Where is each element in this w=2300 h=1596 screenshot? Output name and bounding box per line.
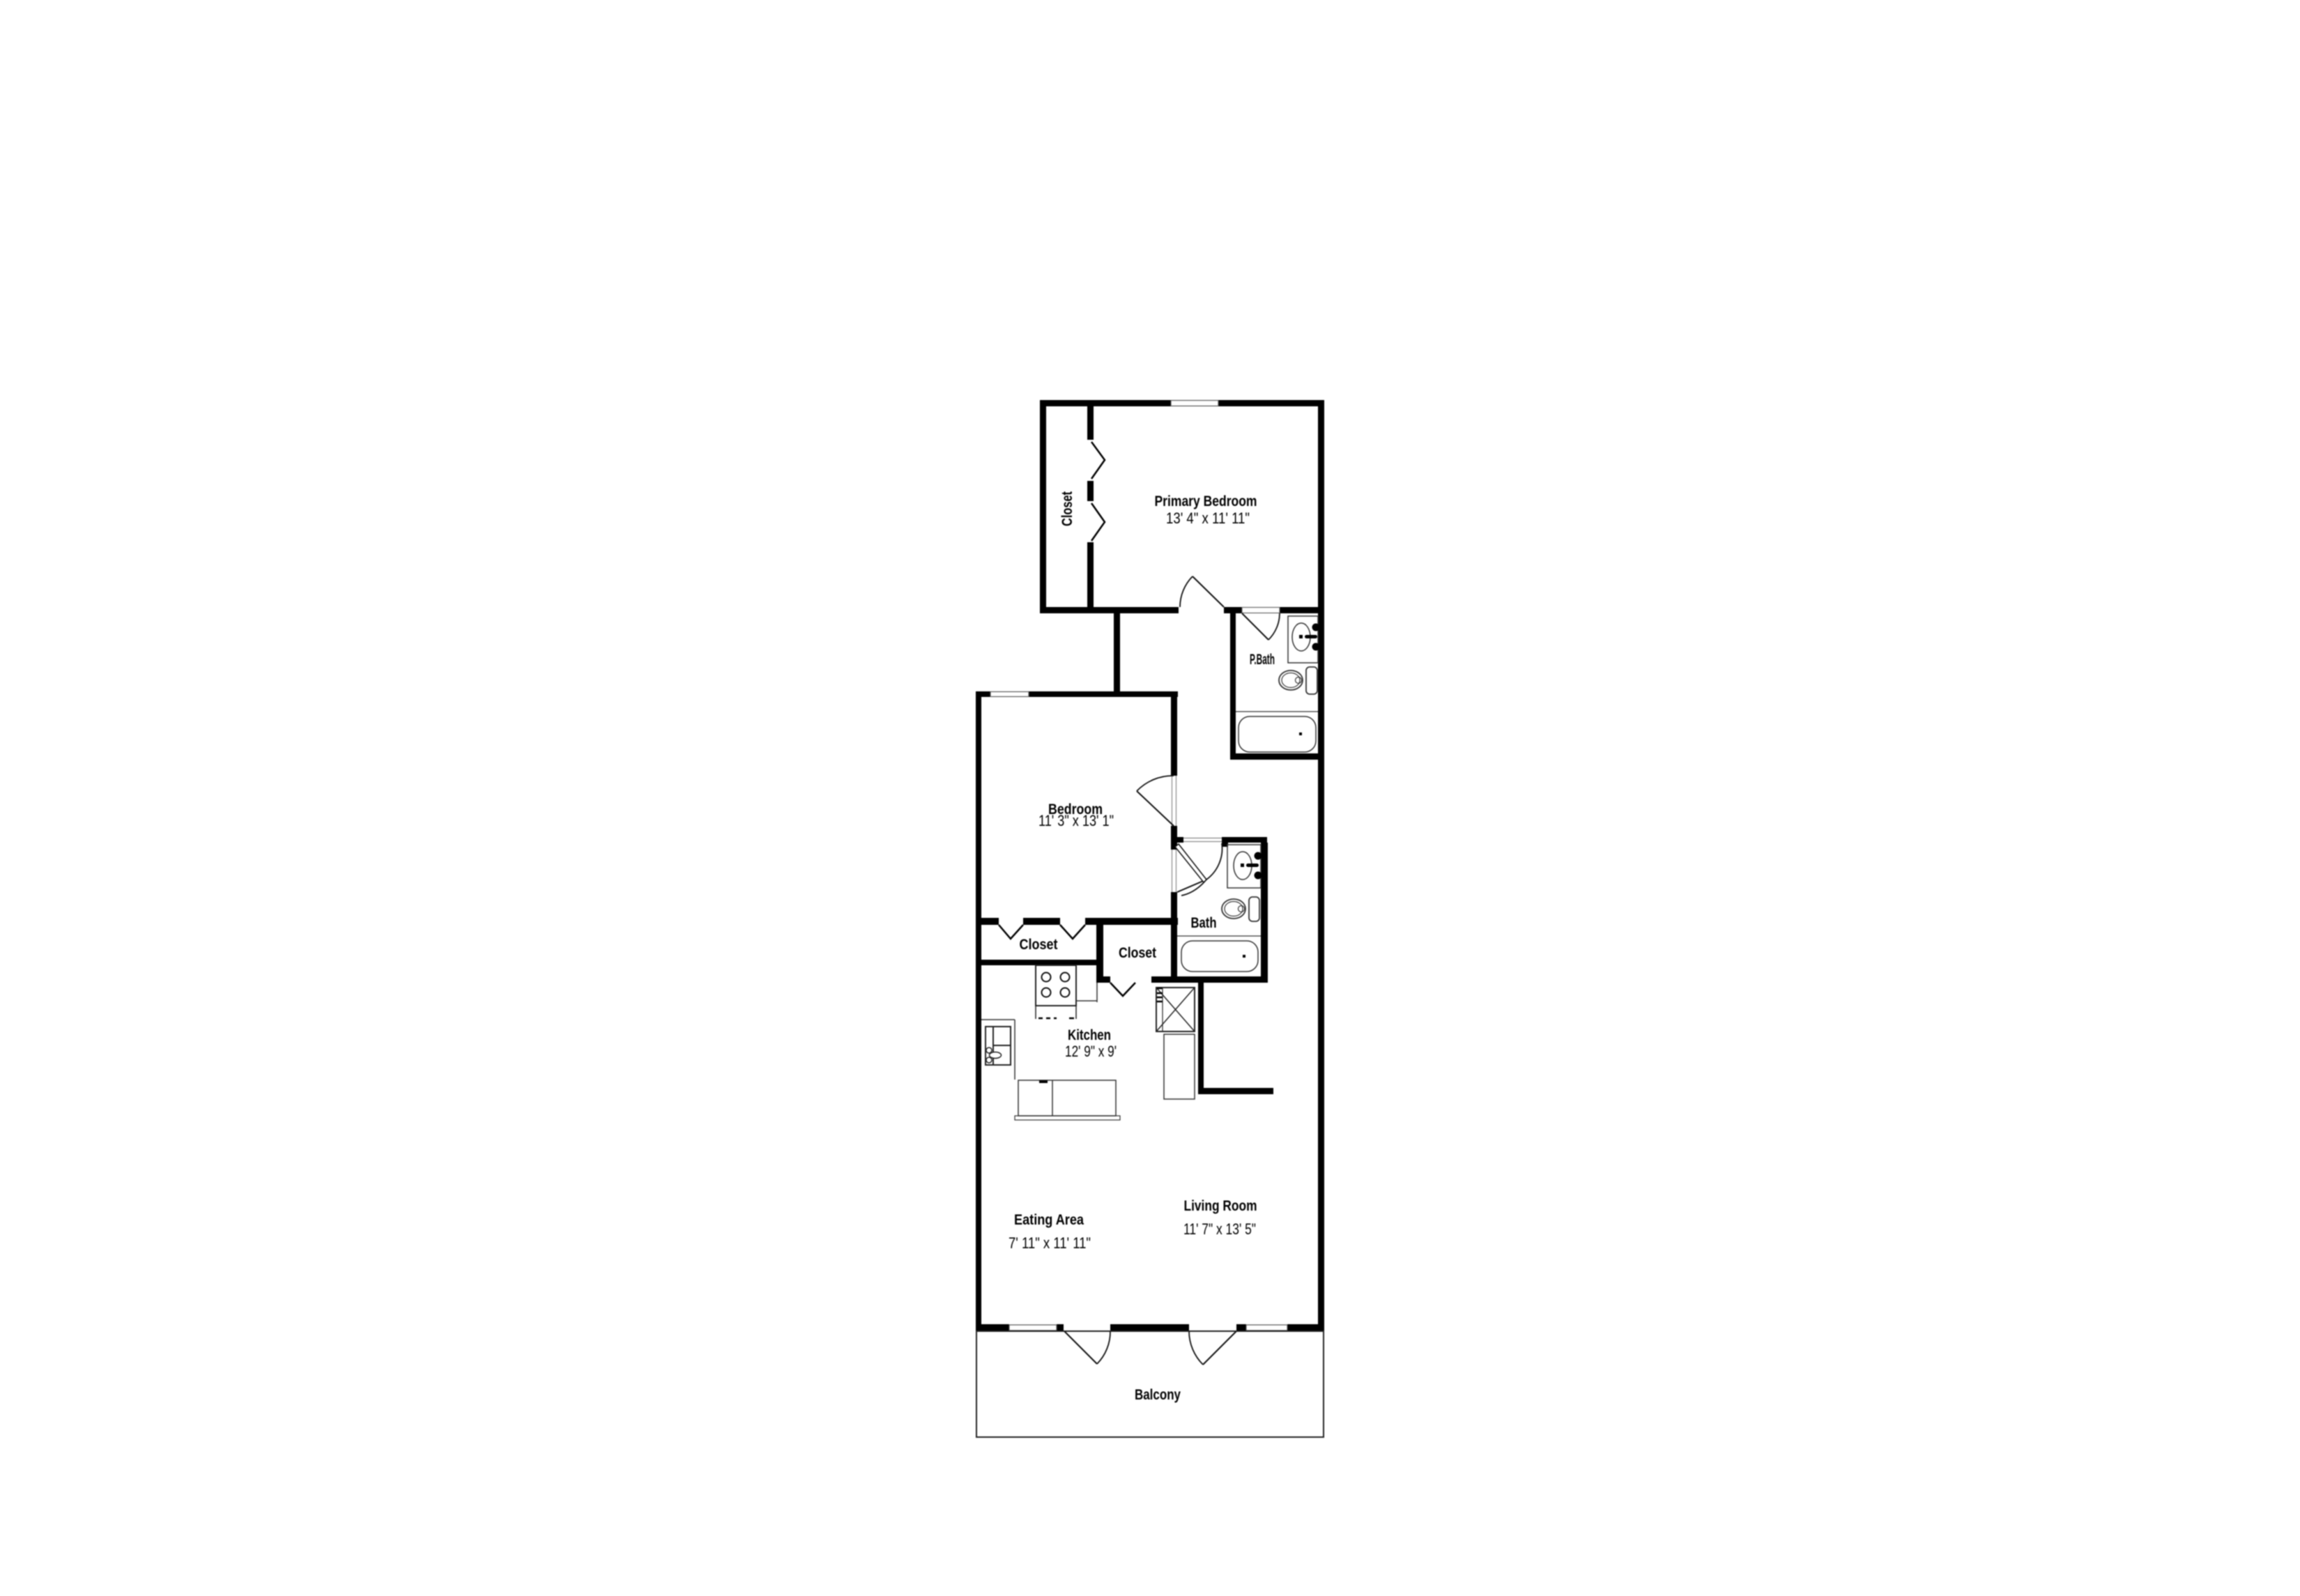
svg-text:11' 3" x 13' 1": 11' 3" x 13' 1" xyxy=(1038,812,1114,829)
svg-text:Bath: Bath xyxy=(1191,915,1217,931)
svg-text:Closet: Closet xyxy=(1020,937,1058,953)
svg-text:Closet: Closet xyxy=(1059,491,1075,526)
svg-text:7' 11" x 11' 11": 7' 11" x 11' 11" xyxy=(1009,1234,1091,1252)
svg-text:12' 9" x 9': 12' 9" x 9' xyxy=(1065,1043,1117,1060)
svg-text:13' 4" x 11' 11": 13' 4" x 11' 11" xyxy=(1166,509,1250,527)
svg-text:Living Room: Living Room xyxy=(1184,1198,1257,1214)
svg-text:Balcony: Balcony xyxy=(1135,1387,1181,1403)
svg-text:Eating Area: Eating Area xyxy=(1014,1212,1084,1228)
svg-text:Closet: Closet xyxy=(1119,945,1156,961)
svg-text:11' 7" x 13' 5": 11' 7" x 13' 5" xyxy=(1183,1220,1256,1238)
svg-text:P.Bath: P.Bath xyxy=(1250,652,1275,668)
svg-text:Kitchen: Kitchen xyxy=(1068,1027,1111,1043)
svg-text:Primary Bedroom: Primary Bedroom xyxy=(1155,493,1257,509)
